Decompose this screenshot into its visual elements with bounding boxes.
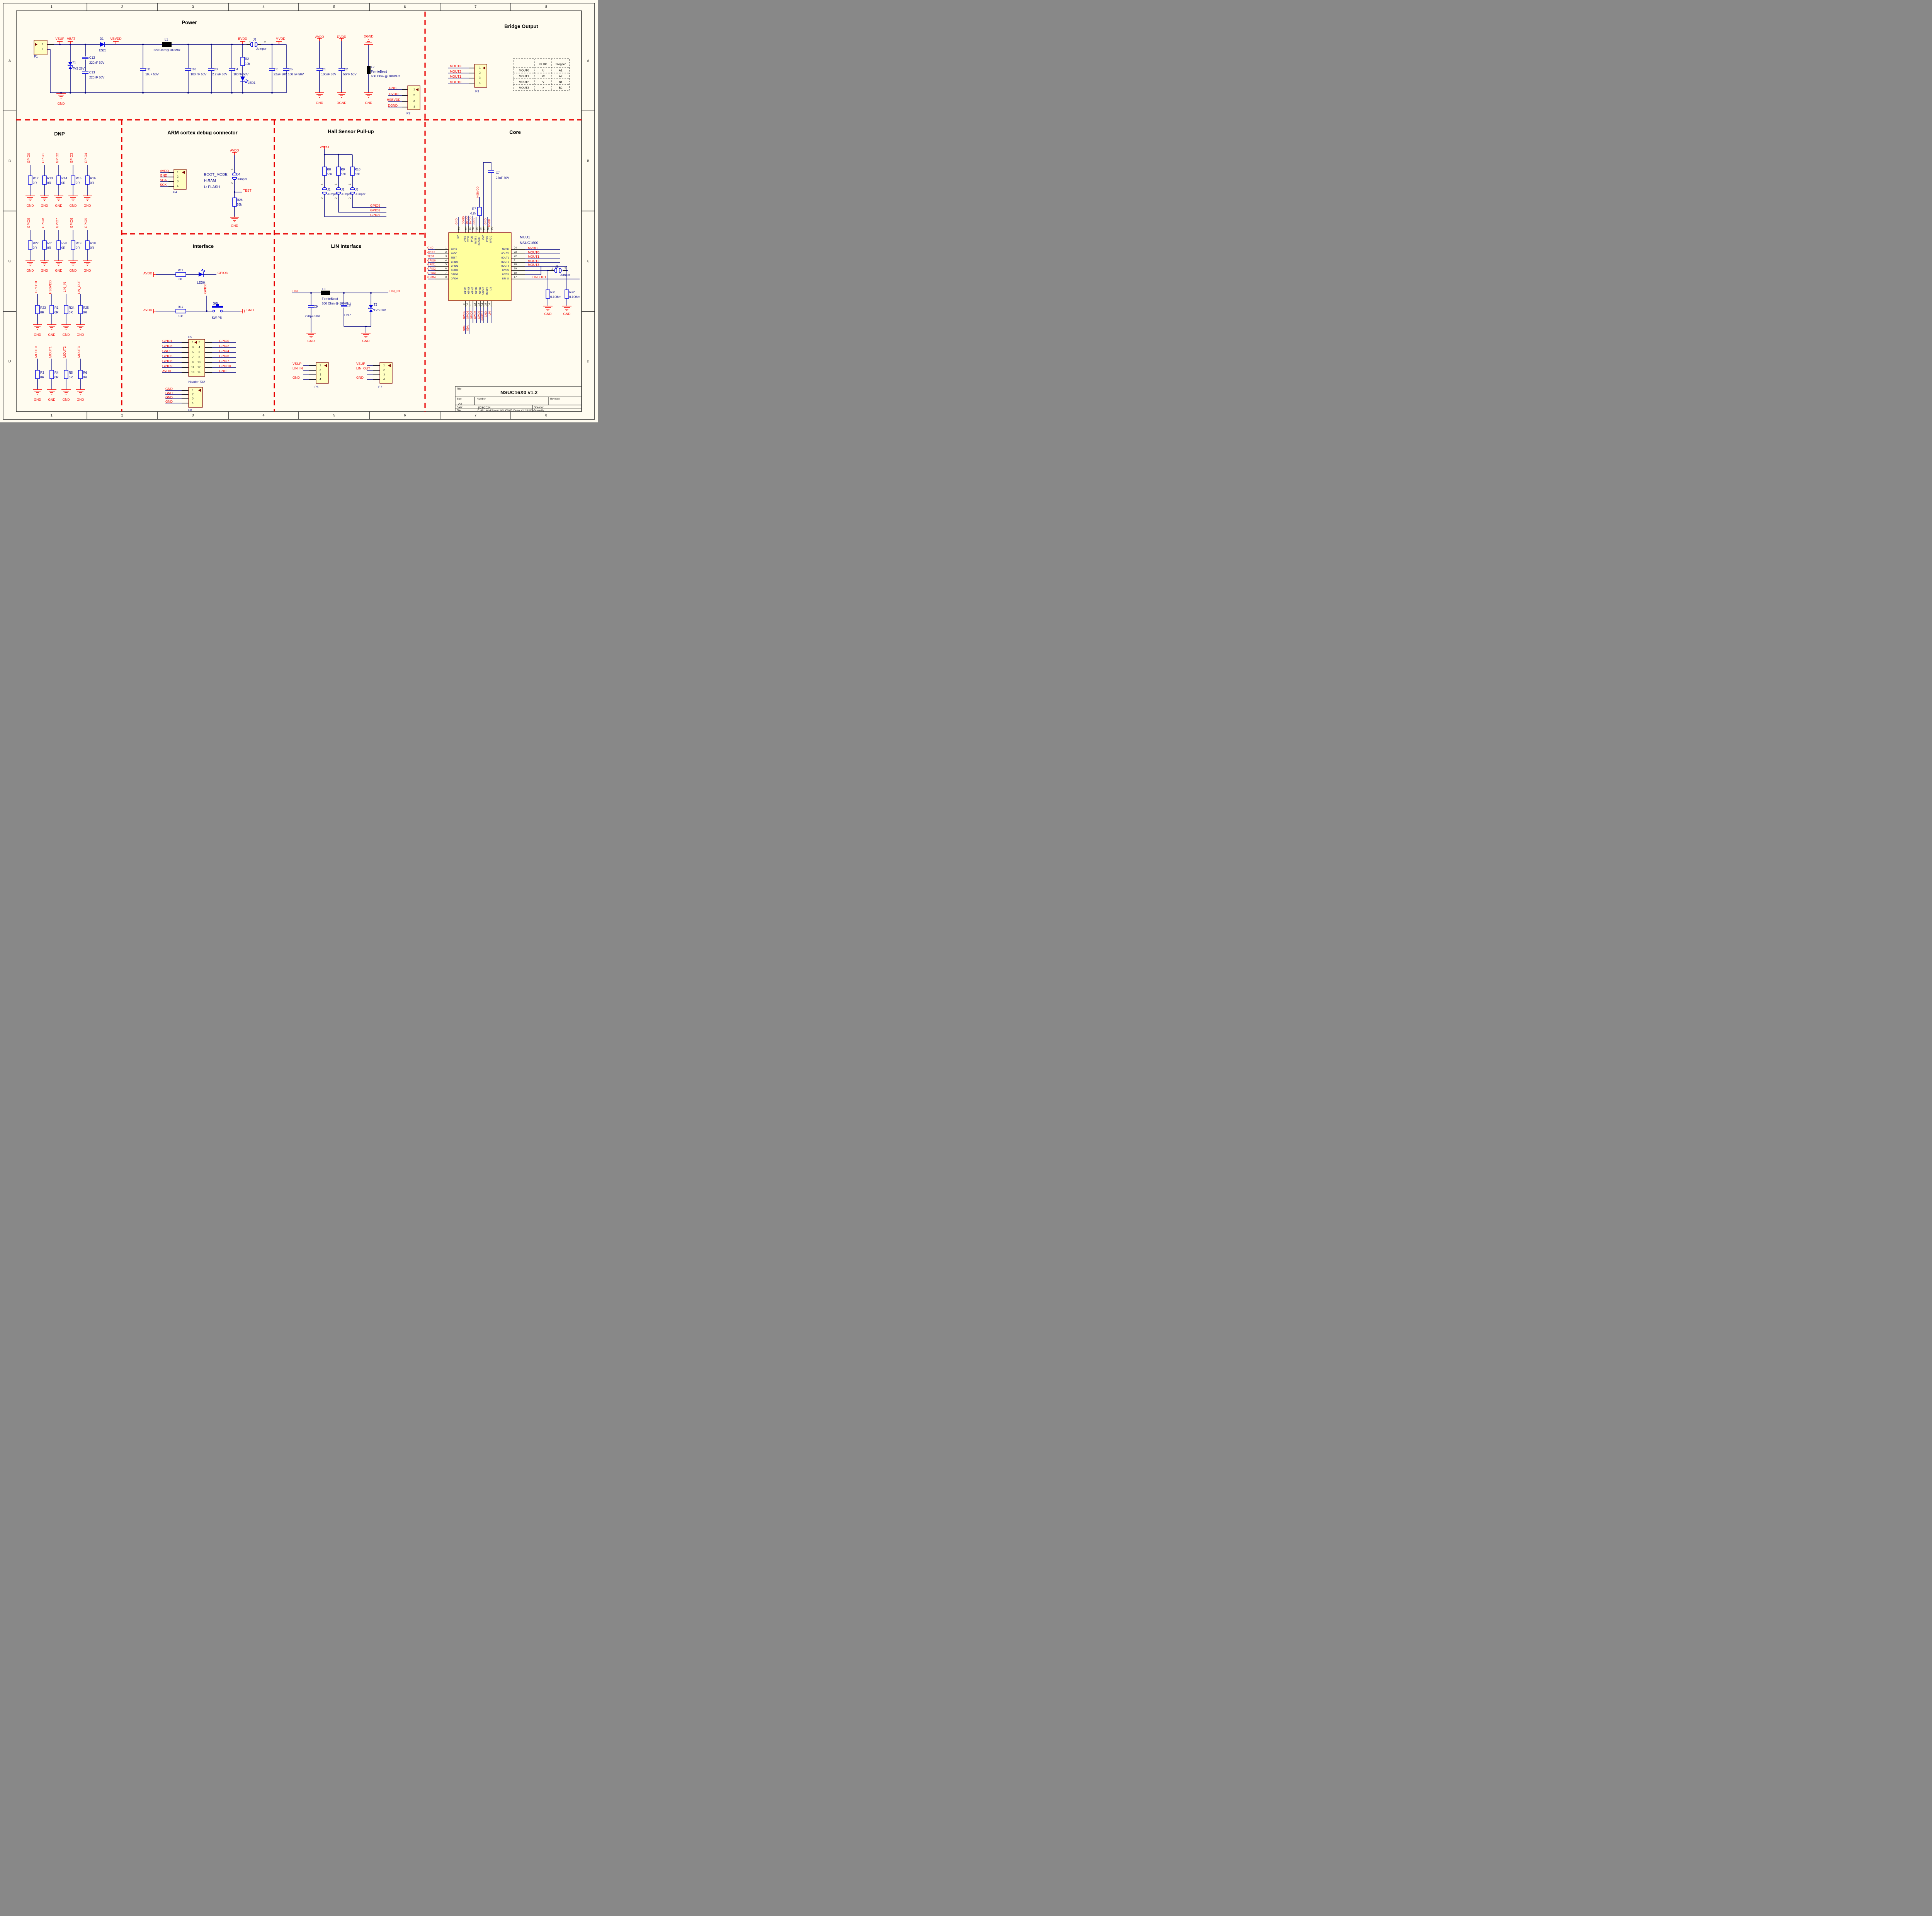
pin: 3 <box>320 374 321 376</box>
net: AVDD <box>160 169 169 173</box>
border-col: 6 <box>404 5 406 9</box>
net: GND <box>165 400 173 403</box>
ref-rs2: Rs2 <box>569 291 575 294</box>
net: MOUT1 <box>49 346 52 358</box>
table-cell: MOUT3 <box>519 86 529 90</box>
val-c3: 2.2 uF 50V <box>212 73 227 76</box>
border-row: D <box>587 360 590 363</box>
table-cell: × <box>543 86 544 90</box>
net: LIN_IN <box>63 282 66 292</box>
ref: R24 <box>69 306 75 310</box>
net: MOUT3 <box>450 65 461 68</box>
wires <box>30 41 580 403</box>
pname: LIN <box>490 287 492 290</box>
ref-c6: C6 <box>274 68 278 71</box>
pin: 4 <box>383 378 385 381</box>
net: AVDD <box>427 251 435 254</box>
gnd: GND <box>27 204 34 208</box>
val-c10: 100 nF 50V <box>190 73 206 76</box>
pin: 1 <box>321 184 324 185</box>
net: GPIO9 <box>27 218 31 228</box>
val-r2: 10k <box>245 63 250 66</box>
val-c5: 100 nF 50V <box>288 73 304 76</box>
gnd: DGND <box>337 101 346 105</box>
net-bvdd: BVDD <box>238 37 247 41</box>
net: MOUT0 <box>450 80 461 84</box>
ref-p2: P2 <box>406 112 410 115</box>
val-r26: 56k <box>237 203 242 206</box>
net: SDA <box>160 179 167 182</box>
pin: 13 <box>191 371 194 374</box>
net: GPIO3 <box>162 344 172 348</box>
net: GND <box>473 218 476 225</box>
gnd: GND <box>362 339 370 343</box>
border-col: 4 <box>263 414 265 417</box>
val-c12: 220nF 50V <box>89 61 104 65</box>
pin: 1 <box>42 43 43 46</box>
gnd: GND <box>77 333 84 337</box>
net: GPIO3 <box>427 272 435 275</box>
gnd: GND <box>84 269 91 272</box>
pin: 2 <box>264 41 266 44</box>
net: GPIO2 <box>56 153 59 163</box>
pin: 4 <box>192 402 194 405</box>
pname: MVDD <box>490 236 492 243</box>
gnd: GND <box>563 312 571 316</box>
val: 0R <box>76 182 80 185</box>
ref-l3: L3 <box>322 288 325 291</box>
file-label: File: <box>457 409 461 412</box>
pin: 19 <box>514 268 517 271</box>
pin: 2 <box>321 197 324 199</box>
pin: 15 <box>485 303 488 306</box>
val-c13: 220nF 50V <box>89 76 104 79</box>
net: GPIO6 <box>70 218 73 228</box>
gnd: GND <box>63 333 70 337</box>
pin: 1 <box>445 247 447 250</box>
sheet-border <box>3 3 595 419</box>
net: LIN_IN <box>389 289 400 293</box>
ref-p6: P6 <box>315 386 318 389</box>
border-row: C <box>587 260 590 263</box>
gnd: GND <box>27 269 34 272</box>
table-cell: A1 <box>559 69 562 72</box>
pin: 27 <box>484 227 486 230</box>
val-p5: Header 7X2 <box>189 381 205 384</box>
val-rs1: 0.1Ohm <box>550 296 561 299</box>
section-title-hall: Hall Sensor Pull-up <box>328 129 374 134</box>
val: 0R <box>90 247 94 250</box>
net: GPIO5 <box>84 218 88 228</box>
val: 0R <box>54 376 58 379</box>
net: GPIO10 <box>219 364 231 368</box>
net-mvdd: MVDD <box>276 37 285 41</box>
pin: 3 <box>383 374 385 376</box>
pname: GPIO3 <box>451 274 458 276</box>
pin: 1 <box>335 184 338 185</box>
val: Jumper <box>355 193 366 196</box>
net-vbvdd: VBVDD <box>110 37 121 41</box>
pin: 30 <box>473 227 475 230</box>
table-cell: MOUT1 <box>519 75 529 78</box>
net: GPIO10 <box>34 281 38 293</box>
val-sw: SW-PB <box>212 316 222 320</box>
val-l2: FerriteBead <box>371 70 387 73</box>
net: DVDD <box>466 216 469 224</box>
border-col: 8 <box>545 414 547 417</box>
pname: GPIO10 <box>483 287 485 295</box>
net: MOUT0 <box>528 251 539 254</box>
schematic-sheet: Power Bridge Output DNP ARM cortex debug… <box>0 0 598 422</box>
ref-rs1: Rs1 <box>550 291 556 294</box>
val-j4: Jumper <box>237 178 247 181</box>
section-title-bridge: Bridge Output <box>504 24 538 29</box>
val: Jumper <box>327 193 338 196</box>
pname: TEST <box>451 257 457 259</box>
ref: J3 <box>355 188 358 191</box>
border-col: 7 <box>474 5 476 9</box>
net-avdd: AVDD <box>315 35 324 39</box>
pin: 1 <box>320 364 321 367</box>
net: GPIO0 <box>427 260 435 262</box>
section-title-core: Core <box>509 129 521 135</box>
net: SCK <box>463 325 466 331</box>
val-l1: 220 Ohm@100Mhz <box>153 49 180 52</box>
pname: BVSS1 <box>475 236 477 243</box>
net: GND <box>456 218 458 225</box>
ref: R3 <box>40 371 44 374</box>
val-r17: 56k <box>178 315 183 318</box>
pin: 12 <box>197 366 201 369</box>
pname: GPIO0 <box>451 261 458 264</box>
pin: 1 <box>249 41 251 44</box>
net: GPIO10 <box>481 311 484 320</box>
ref-p1: P1 <box>34 55 38 58</box>
ref-c4: C4 <box>234 68 238 71</box>
border-col: 7 <box>474 414 476 417</box>
pin: 2 <box>42 48 43 51</box>
pin: 8 <box>199 356 200 359</box>
net: MOUT0 <box>34 346 38 358</box>
ref: J2 <box>341 188 344 191</box>
bridge-output-table: BLDC Stepper MOUT0 U A1 MOUT1 W A2 MOUT2… <box>513 59 570 90</box>
val: 0R <box>83 311 87 314</box>
pname: MVSS <box>502 274 509 276</box>
net: HSBVDD <box>49 280 52 294</box>
pname: GPIO9 <box>479 287 481 294</box>
net: GPIO5 <box>162 354 172 358</box>
net: SDA <box>467 325 469 331</box>
ref: R18 <box>90 242 96 245</box>
border-row: D <box>9 360 11 363</box>
ref-t1: T1 <box>72 61 76 64</box>
pin: 11 <box>471 303 473 306</box>
pin: 2 <box>192 393 194 396</box>
val-c4: 100nF 50V <box>233 73 248 76</box>
net: GPIO0 <box>27 153 31 163</box>
pin: 3 <box>177 180 179 183</box>
table-cell: MOUT2 <box>519 80 529 84</box>
val-j8: Jumper <box>256 48 267 51</box>
ref-c10: C10 <box>190 68 196 71</box>
val: 0R <box>61 182 65 185</box>
net: DGND <box>388 104 398 107</box>
pin: 1 <box>192 341 194 344</box>
net: MOUT3 <box>77 346 81 358</box>
val: 56k <box>341 173 346 176</box>
net: LIN_OUT <box>532 276 546 279</box>
net: MOUT2 <box>528 259 539 263</box>
net: DVDD <box>389 92 398 96</box>
ref: R12 <box>33 177 39 180</box>
pin: 28 <box>480 227 483 230</box>
ref: R14 <box>61 177 67 180</box>
val-t1: TVS 26V <box>72 67 85 70</box>
pin: 29 <box>476 227 479 230</box>
border-col: 5 <box>333 5 335 9</box>
ref-r7: R7 <box>472 208 476 211</box>
val: 56k <box>327 173 332 176</box>
ref-c7: C7 <box>496 172 500 175</box>
val: 0R <box>47 247 51 250</box>
date-value: 1/23/2024 <box>478 406 490 409</box>
gnd: GND <box>48 398 56 402</box>
val-c8: DNP <box>344 314 351 317</box>
ref-t2: T2 <box>374 303 377 306</box>
net: GPIO3 <box>218 271 228 275</box>
net: GND <box>165 387 173 391</box>
border-row: B <box>587 159 589 163</box>
val: 0R <box>33 247 37 250</box>
pname: GPIO2 <box>451 269 458 272</box>
val-c6: 22uF 50V <box>274 73 287 76</box>
net: BVDD <box>469 216 472 224</box>
diode-d1 <box>100 42 105 47</box>
ref-l1: L1 <box>165 38 168 41</box>
net: MOUT1 <box>450 75 461 78</box>
pname: DVDD <box>468 236 470 242</box>
net: GPIO3 <box>70 153 73 163</box>
pin: 25 <box>492 227 494 230</box>
border-col: 2 <box>121 5 123 9</box>
net: MOUT2 <box>63 346 66 358</box>
net: GND <box>247 308 254 312</box>
gnd: GND <box>84 204 91 208</box>
val-mcu1: NSUC1600 <box>520 241 538 245</box>
val-l2b: 600 Ohm @ 100MHz <box>371 75 400 78</box>
pname: BVSS0 <box>486 287 488 294</box>
gnd: GND <box>41 204 48 208</box>
pname: BVDD <box>471 236 473 243</box>
net: GND <box>356 376 364 379</box>
val-c9: 220pF 50V <box>305 315 320 318</box>
net: DGND <box>463 216 465 225</box>
pin: 3 <box>192 346 194 349</box>
border-col: 3 <box>192 414 194 417</box>
gnd: GND <box>55 204 63 208</box>
pin: 1 <box>192 389 194 392</box>
net: MVDD <box>528 247 537 250</box>
val-c1: 100nF 50V <box>321 73 336 76</box>
val-c2: 50nF 50V <box>343 73 357 76</box>
gnd: GND <box>58 102 65 105</box>
gnd: GND <box>544 312 552 316</box>
border-col: 1 <box>51 5 53 9</box>
border-col: 5 <box>333 414 335 417</box>
pname: MOUT3 <box>501 265 509 267</box>
val: 56k <box>355 173 360 176</box>
val: 0R <box>76 247 80 250</box>
switch-sw <box>212 304 223 312</box>
ref-r17: R17 <box>178 306 184 309</box>
pin: 10 <box>467 303 469 306</box>
ferrite-l1 <box>162 42 172 47</box>
ref: R1 <box>54 306 58 310</box>
gnd: GND <box>41 269 48 272</box>
gnd: GND <box>365 101 372 105</box>
pin: 4 <box>479 82 481 85</box>
pin: 2 <box>383 369 385 372</box>
ref-r26: R26 <box>237 199 243 202</box>
ref-j8: J8 <box>253 38 256 41</box>
power-bars <box>153 272 244 313</box>
pname: MVSS <box>502 269 509 272</box>
ref-d1: D1 <box>100 37 104 41</box>
val: 0R <box>33 182 37 185</box>
val-d1: ES2J <box>99 49 106 52</box>
pname: VCP <box>482 235 485 240</box>
led1 <box>240 77 248 83</box>
revision-label: Revision <box>550 398 560 400</box>
net: AVDD <box>162 369 171 373</box>
pin: 11 <box>191 366 194 369</box>
pin: 9 <box>463 303 466 305</box>
pin: 7 <box>192 356 194 359</box>
net: GND <box>389 87 396 90</box>
pin: 2 <box>231 182 234 184</box>
ref: R9 <box>341 168 345 171</box>
pin: 1 <box>551 268 553 271</box>
pin: 10 <box>197 361 201 364</box>
net-avdd: AVDD <box>320 145 329 149</box>
net: GND <box>293 376 300 379</box>
jumper-j8 <box>250 42 257 47</box>
ref-sw: SW <box>213 302 218 305</box>
net: GPIO7 <box>56 218 59 228</box>
val-l3: FerriteBead <box>322 298 338 301</box>
pin: 23 <box>514 251 517 254</box>
net: GPIO0 <box>219 339 229 343</box>
pname: HSBVDD <box>478 237 481 246</box>
net: LIN_OUT <box>77 280 81 294</box>
net: GPIO7 <box>219 359 229 363</box>
pin: 2 <box>335 197 338 199</box>
size-label: Size <box>457 398 462 400</box>
sheet-title: NSUC16X0 v1.2 <box>500 390 537 395</box>
val: Jumper <box>341 193 352 196</box>
net: TEST <box>427 255 434 258</box>
border-col: 8 <box>545 5 547 9</box>
section-title-arm: ARM cortex debug connector <box>167 130 237 136</box>
val-t2: TVS 26V <box>374 309 386 312</box>
val: 0R <box>90 182 94 185</box>
pname: AVSS <box>451 248 457 251</box>
net: GPIO8 <box>474 311 477 319</box>
net: LIN <box>489 311 492 316</box>
led0 <box>199 269 205 277</box>
net: LIN_IN <box>293 367 303 370</box>
section-title-dnp: DNP <box>54 131 65 137</box>
pin: 31 <box>469 227 472 230</box>
net: LIN_OUT <box>356 367 370 370</box>
net: SCK <box>160 183 167 187</box>
ref-c1: C1 <box>322 68 326 71</box>
pin: 4 <box>199 346 200 349</box>
pin: 8 <box>445 276 447 279</box>
pname: GPIO6 <box>468 287 470 294</box>
pname: GPIO4 <box>451 278 458 280</box>
pin: 1 <box>349 184 352 185</box>
gnd: GND <box>77 398 84 402</box>
pin: 3 <box>479 77 481 80</box>
ref: R20 <box>61 242 67 245</box>
ref: R6 <box>83 371 87 374</box>
pname: EP <box>457 235 459 238</box>
val-j5: Jumper <box>560 274 570 277</box>
title-block: Title NSUC16X0 v1.2 Size Number Revision… <box>455 386 582 412</box>
table-cell: W <box>542 75 544 78</box>
table-cell: B2 <box>559 86 562 90</box>
net-test: TEST <box>243 189 252 192</box>
net: GPIO8 <box>41 218 45 228</box>
pin: 2 <box>349 197 352 199</box>
ref: R4 <box>54 371 58 374</box>
net: AVDD <box>143 308 152 312</box>
net: GPIO7 <box>471 311 473 319</box>
ref-c11: C11 <box>145 68 151 71</box>
ref-c2: C2 <box>344 68 348 71</box>
drawn-by-label: Drawn By: <box>534 410 545 412</box>
gnd: GND <box>308 339 315 343</box>
val-r7: 4.7k <box>470 212 476 215</box>
section-title-interface: Interface <box>193 243 214 249</box>
pin: 1 <box>413 88 415 91</box>
ref-l2: L2 <box>371 66 374 69</box>
ref-p7: P7 <box>378 386 382 389</box>
val-r11: 3k <box>179 278 182 281</box>
table-header: Stepper <box>556 63 566 66</box>
pin: 2 <box>565 267 566 270</box>
net: GPIO5 <box>370 204 380 208</box>
ref-p8: P8 <box>188 409 192 412</box>
net: GPIO9 <box>478 311 481 319</box>
pin: 6 <box>445 268 447 271</box>
border-col: 3 <box>192 5 194 9</box>
net: GPIO4 <box>219 349 229 353</box>
net: GND <box>165 396 173 399</box>
net-avdd: AVDD <box>230 149 239 152</box>
net-vbat: VBAT <box>67 37 75 41</box>
note: BOOT_MODE <box>204 173 228 177</box>
net: MVDD <box>488 219 491 227</box>
sheet-label: Sheet of <box>534 406 543 409</box>
net: GPIO4 <box>84 153 88 163</box>
net: GND <box>219 369 226 373</box>
net: MOUT3 <box>528 263 539 267</box>
ferrite-l3 <box>321 291 330 295</box>
net: HSBVDD <box>387 98 400 102</box>
pin: 4 <box>320 378 321 381</box>
